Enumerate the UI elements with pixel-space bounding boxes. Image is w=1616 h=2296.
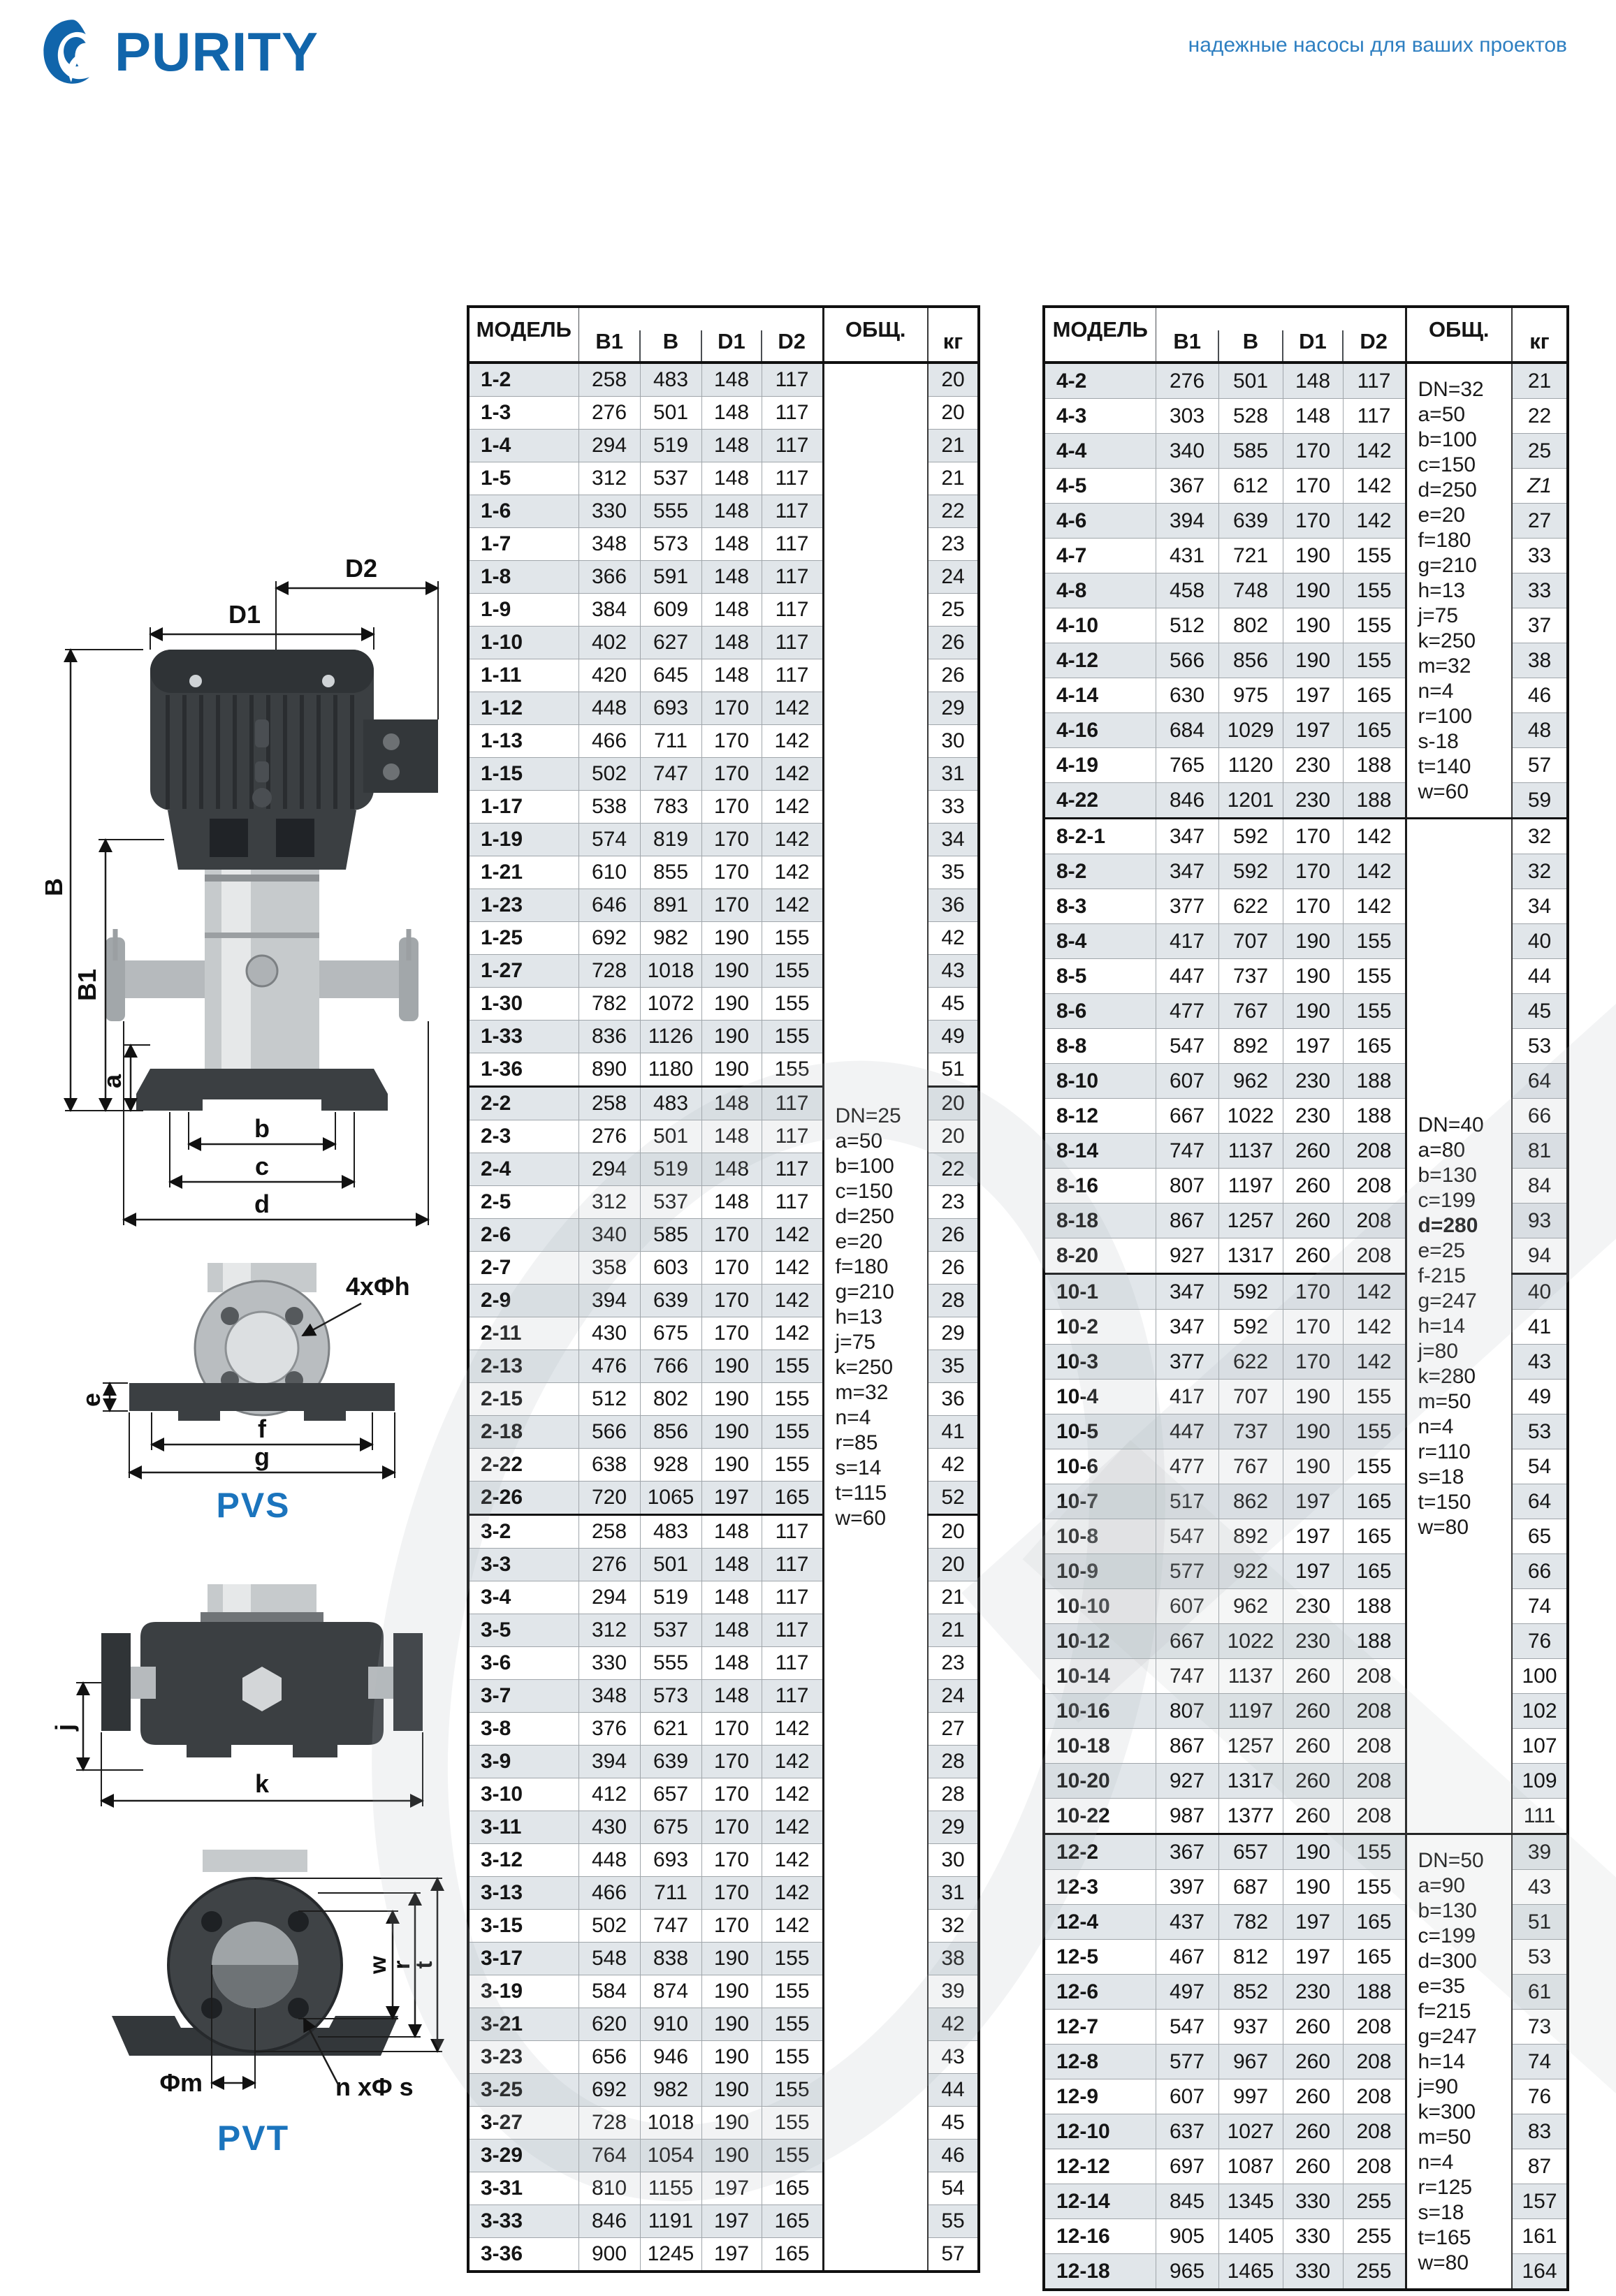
- note-line: f=180: [1418, 528, 1512, 553]
- model-cell: 1-12: [468, 692, 578, 725]
- b-cell: 711: [640, 725, 701, 758]
- d2-cell: 155: [762, 1383, 823, 1416]
- brand-tagline: надежные насосы для ваших проектов: [1188, 34, 1567, 57]
- b-cell: 621: [640, 1713, 701, 1746]
- col-header-b1: B1: [1156, 307, 1218, 363]
- b1-cell: 905: [1156, 2219, 1218, 2254]
- d1-cell: 170: [701, 1252, 762, 1285]
- b1-cell: 807: [1156, 1694, 1218, 1729]
- d1-cell: 190: [701, 1943, 762, 1975]
- note-line: s=14: [836, 1456, 928, 1481]
- b1-cell: 294: [578, 1581, 640, 1614]
- note-line: c=199: [1418, 1188, 1512, 1213]
- d1-cell: 148: [1283, 363, 1343, 399]
- b-cell: 501: [640, 1120, 701, 1153]
- dim-label-f: f: [258, 1414, 267, 1443]
- model-cell: 1-6: [468, 495, 578, 528]
- d2-cell: 155: [762, 1975, 823, 2008]
- kg-cell: 49: [928, 1021, 979, 1053]
- model-cell: 4-2: [1044, 363, 1156, 399]
- model-cell: 2-18: [468, 1416, 578, 1449]
- junction-box: [363, 719, 438, 793]
- b-cell: 1405: [1218, 2219, 1283, 2254]
- note-line: j=75: [836, 1330, 928, 1355]
- b1-cell: 312: [578, 1186, 640, 1219]
- b1-cell: 412: [578, 1778, 640, 1811]
- b-cell: 838: [640, 1943, 701, 1975]
- note-line: t=150: [1418, 1490, 1512, 1515]
- d1-cell: 197: [1283, 1940, 1343, 1975]
- b-cell: 874: [640, 1975, 701, 2008]
- d1-cell: 190: [1283, 1380, 1343, 1414]
- model-cell: 3-21: [468, 2008, 578, 2041]
- b-cell: 1027: [1218, 2114, 1283, 2149]
- b-cell: 783: [640, 791, 701, 824]
- model-cell: 2-3: [468, 1120, 578, 1153]
- d1-cell: 190: [701, 922, 762, 955]
- note-line: n=4: [836, 1405, 928, 1431]
- d2-cell: 142: [1343, 504, 1406, 539]
- d2-cell: 142: [1343, 1274, 1406, 1310]
- b1-cell: 607: [1156, 1064, 1218, 1099]
- pvt-side-view-diagram: j k: [45, 1584, 461, 1825]
- note-line: a=50: [836, 1129, 928, 1154]
- d1-cell: 170: [701, 758, 762, 791]
- d1-cell: 190: [1283, 959, 1343, 994]
- kg-cell: 26: [928, 627, 979, 659]
- d2-cell: 117: [762, 397, 823, 430]
- d1-cell: 260: [1283, 1659, 1343, 1694]
- header-row: МОДЕЛЬ B1 B D1 D2 ОБЩ. кг: [1044, 307, 1568, 363]
- d2-cell: 117: [762, 1120, 823, 1153]
- obsh-note-cell: DN=32a=50b=100c=150d=250e=20f=180g=210h=…: [1406, 363, 1512, 819]
- model-cell: 8-8: [1044, 1029, 1156, 1064]
- model-cell: 3-19: [468, 1975, 578, 2008]
- d1-cell: 148: [701, 1647, 762, 1680]
- b-cell: 585: [1218, 434, 1283, 469]
- d2-cell: 208: [1343, 1729, 1406, 1764]
- b1-cell: 366: [578, 561, 640, 594]
- kg-cell: 45: [1512, 994, 1568, 1029]
- model-cell: 2-7: [468, 1252, 578, 1285]
- d2-cell: 208: [1343, 1238, 1406, 1274]
- model-cell: 2-13: [468, 1350, 578, 1383]
- d2-cell: 155: [1343, 539, 1406, 573]
- kg-cell: 61: [1512, 1975, 1568, 2010]
- kg-cell: 43: [1512, 1870, 1568, 1905]
- kg-cell: 48: [1512, 713, 1568, 748]
- kg-cell: 102: [1512, 1694, 1568, 1729]
- d2-cell: 117: [1343, 363, 1406, 399]
- kg-cell: 107: [1512, 1729, 1568, 1764]
- b-cell: 1029: [1218, 713, 1283, 748]
- pvs-series-label: PVS: [45, 1485, 461, 1526]
- kg-cell: 66: [1512, 1554, 1568, 1589]
- model-cell: 12-14: [1044, 2184, 1156, 2219]
- d2-cell: 208: [1343, 2045, 1406, 2079]
- note-line: j=75: [1418, 604, 1512, 629]
- b-cell: 937: [1218, 2010, 1283, 2045]
- model-cell: 10-14: [1044, 1659, 1156, 1694]
- kg-cell: 43: [928, 955, 979, 988]
- b-cell: 928: [640, 1449, 701, 1482]
- kg-cell: Z1: [1512, 469, 1568, 504]
- b1-cell: 747: [1156, 1659, 1218, 1694]
- b1-cell: 377: [1156, 889, 1218, 924]
- kg-cell: 76: [1512, 1624, 1568, 1659]
- col-header-d2: D2: [1343, 307, 1406, 363]
- d2-cell: 155: [1343, 608, 1406, 643]
- b-cell: 1465: [1218, 2254, 1283, 2290]
- b-cell: 967: [1218, 2045, 1283, 2079]
- b-cell: 711: [640, 1877, 701, 1910]
- d1-cell: 197: [701, 1482, 762, 1515]
- kg-cell: 34: [928, 824, 979, 856]
- d1-cell: 148: [701, 1153, 762, 1186]
- d2-cell: 155: [1343, 1414, 1406, 1449]
- d2-cell: 117: [762, 1647, 823, 1680]
- b1-cell: 630: [1156, 678, 1218, 713]
- b1-cell: 437: [1156, 1905, 1218, 1940]
- note-line: b=100: [1418, 427, 1512, 453]
- d2-cell: 142: [762, 1877, 823, 1910]
- d2-cell: 142: [762, 1252, 823, 1285]
- model-cell: 3-6: [468, 1647, 578, 1680]
- model-cell: 1-25: [468, 922, 578, 955]
- model-cell: 4-4: [1044, 434, 1156, 469]
- d1-cell: 197: [1283, 1484, 1343, 1519]
- d2-cell: 188: [1343, 783, 1406, 819]
- note-line: h=14: [1418, 1314, 1512, 1339]
- d1-cell: 170: [701, 1746, 762, 1778]
- model-cell: 8-12: [1044, 1099, 1156, 1134]
- b-cell: 812: [1218, 1940, 1283, 1975]
- d1-cell: 330: [1283, 2184, 1343, 2219]
- d1-cell: 190: [701, 1350, 762, 1383]
- pvs-side-view-diagram: D2 D1 B B1 a b c d: [45, 552, 461, 1257]
- brand-logo: PURITY: [36, 15, 319, 88]
- d1-cell: 170: [701, 1713, 762, 1746]
- table-row: 12-2367657190155DN=50a=90b=130c=199d=300…: [1044, 1834, 1568, 1870]
- note-line: m=50: [1418, 1389, 1512, 1414]
- kg-cell: 34: [1512, 889, 1568, 924]
- d2-cell: 165: [1343, 1029, 1406, 1064]
- d1-cell: 197: [701, 2172, 762, 2205]
- kg-cell: 46: [928, 2140, 979, 2172]
- b1-cell: 347: [1156, 854, 1218, 889]
- b-cell: 891: [640, 889, 701, 922]
- b-cell: 1245: [640, 2238, 701, 2272]
- d2-cell: 188: [1343, 1975, 1406, 2010]
- model-cell: 10-22: [1044, 1799, 1156, 1834]
- note-line: h=13: [836, 1305, 928, 1330]
- d1-cell: 190: [1283, 924, 1343, 959]
- d2-cell: 142: [762, 1746, 823, 1778]
- note-line: e=35: [1418, 1974, 1512, 1999]
- note-line: j=80: [1418, 1339, 1512, 1364]
- b-cell: 892: [1218, 1519, 1283, 1554]
- d1-cell: 170: [701, 725, 762, 758]
- b1-cell: 258: [578, 363, 640, 397]
- note-line: h=14: [1418, 2049, 1512, 2075]
- note-line: a=90: [1418, 1873, 1512, 1899]
- model-cell: 4-12: [1044, 643, 1156, 678]
- model-cell: 12-18: [1044, 2254, 1156, 2290]
- b1-cell: 577: [1156, 2045, 1218, 2079]
- d1-cell: 170: [1283, 1310, 1343, 1345]
- d2-cell: 155: [1343, 959, 1406, 994]
- obsh-note-cell: DN=25a=50b=100c=150d=250e=20f=180g=210h=…: [823, 363, 928, 2272]
- kg-cell: 33: [928, 791, 979, 824]
- d1-cell: 197: [1283, 1905, 1343, 1940]
- col-header-obsh: ОБЩ.: [823, 307, 928, 363]
- d1-cell: 148: [701, 1186, 762, 1219]
- col-header-b: B: [640, 307, 701, 363]
- b1-cell: 764: [578, 2140, 640, 2172]
- kg-cell: 83: [1512, 2114, 1568, 2149]
- d2-cell: 155: [762, 1416, 823, 1449]
- dim-label-g: g: [254, 1442, 270, 1471]
- d1-cell: 148: [701, 1614, 762, 1647]
- model-cell: 8-3: [1044, 889, 1156, 924]
- d2-cell: 142: [1343, 469, 1406, 504]
- d1-cell: 260: [1283, 2114, 1343, 2149]
- b1-cell: 620: [578, 2008, 640, 2041]
- d2-cell: 155: [1343, 1834, 1406, 1870]
- kg-cell: 22: [928, 495, 979, 528]
- model-cell: 12-4: [1044, 1905, 1156, 1940]
- b-cell: 573: [640, 1680, 701, 1713]
- d1-cell: 197: [701, 2238, 762, 2272]
- note-line: c=199: [1418, 1924, 1512, 1949]
- b1-cell: 417: [1156, 924, 1218, 959]
- b1-cell: 466: [578, 725, 640, 758]
- b1-cell: 276: [578, 1120, 640, 1153]
- b1-cell: 330: [578, 495, 640, 528]
- purity-logo-icon: [36, 15, 109, 88]
- d2-cell: 208: [1343, 1204, 1406, 1238]
- kg-cell: 33: [1512, 539, 1568, 573]
- d1-cell: 260: [1283, 2149, 1343, 2184]
- d1-cell: 190: [1283, 1449, 1343, 1484]
- model-cell: 3-36: [468, 2238, 578, 2272]
- kg-cell: 20: [928, 1515, 979, 1549]
- col-header-model: МОДЕЛЬ: [468, 307, 578, 363]
- b1-cell: 497: [1156, 1975, 1218, 2010]
- note-line: e=20: [1418, 503, 1512, 528]
- model-cell: 4-16: [1044, 713, 1156, 748]
- b-cell: 1257: [1218, 1204, 1283, 1238]
- b1-cell: 312: [578, 462, 640, 495]
- b1-cell: 367: [1156, 1834, 1218, 1870]
- b-cell: 501: [640, 397, 701, 430]
- kg-cell: 41: [1512, 1310, 1568, 1345]
- d1-cell: 170: [1283, 504, 1343, 539]
- b1-cell: 402: [578, 627, 640, 659]
- note-line: c=150: [836, 1179, 928, 1204]
- b1-cell: 548: [578, 1943, 640, 1975]
- d2-cell: 155: [762, 2008, 823, 2041]
- model-cell: 1-11: [468, 659, 578, 692]
- b1-cell: 566: [1156, 643, 1218, 678]
- b1-cell: 294: [578, 1153, 640, 1186]
- model-cell: 1-7: [468, 528, 578, 561]
- b1-cell: 420: [578, 659, 640, 692]
- col-header-obsh: ОБЩ.: [1406, 307, 1512, 363]
- dimensions-table-right: МОДЕЛЬ B1 B D1 D2 ОБЩ. кг 4-227650114811…: [1042, 305, 1569, 2291]
- note-line: m=32: [836, 1380, 928, 1405]
- d2-cell: 142: [762, 1219, 823, 1252]
- d2-cell: 155: [762, 1449, 823, 1482]
- d1-cell: 260: [1283, 1764, 1343, 1799]
- d1-cell: 170: [701, 889, 762, 922]
- model-cell: 1-10: [468, 627, 578, 659]
- note-line: d=280: [1418, 1213, 1512, 1238]
- b-cell: 1126: [640, 1021, 701, 1053]
- note-line: w=60: [1418, 780, 1512, 805]
- d1-cell: 170: [1283, 854, 1343, 889]
- dim-label-phim: Φm: [159, 2068, 203, 2097]
- model-cell: 2-15: [468, 1383, 578, 1416]
- note-line: h=13: [1418, 578, 1512, 604]
- model-cell: 8-2-1: [1044, 819, 1156, 854]
- d2-cell: 117: [762, 363, 823, 397]
- note-line: g=247: [1418, 2024, 1512, 2049]
- note-line: r=110: [1418, 1440, 1512, 1465]
- note-line: DN=32: [1418, 377, 1512, 402]
- kg-cell: 21: [928, 430, 979, 462]
- model-cell: 10-9: [1044, 1554, 1156, 1589]
- kg-cell: 74: [1512, 1589, 1568, 1624]
- b1-cell: 747: [1156, 1134, 1218, 1169]
- d2-cell: 117: [762, 1680, 823, 1713]
- kg-cell: 25: [1512, 434, 1568, 469]
- b1-cell: 637: [1156, 2114, 1218, 2149]
- kg-cell: 20: [928, 363, 979, 397]
- model-cell: 8-10: [1044, 1064, 1156, 1099]
- dim-label-a: a: [98, 1074, 126, 1088]
- d2-cell: 142: [762, 725, 823, 758]
- b1-cell: 458: [1156, 573, 1218, 608]
- model-cell: 3-8: [468, 1713, 578, 1746]
- kg-cell: 57: [1512, 748, 1568, 783]
- kg-cell: 23: [928, 1186, 979, 1219]
- b1-cell: 512: [578, 1383, 640, 1416]
- b-cell: 519: [640, 1581, 701, 1614]
- d2-cell: 155: [1343, 1870, 1406, 1905]
- model-cell: 10-20: [1044, 1764, 1156, 1799]
- col-header-d2: D2: [762, 307, 823, 363]
- kg-cell: 26: [928, 659, 979, 692]
- d1-cell: 170: [701, 1811, 762, 1844]
- kg-cell: 46: [1512, 678, 1568, 713]
- table-row: 4-2276501148117DN=32a=50b=100c=150d=250e…: [1044, 363, 1568, 399]
- b-cell: 645: [640, 659, 701, 692]
- kg-cell: 33: [1512, 573, 1568, 608]
- d1-cell: 197: [1283, 1519, 1343, 1554]
- b-cell: 707: [1218, 1380, 1283, 1414]
- col-header-kg: кг: [928, 307, 979, 363]
- d1-cell: 170: [701, 1219, 762, 1252]
- kg-cell: 21: [928, 462, 979, 495]
- dim-label-nphis: n xΦ s: [335, 2072, 414, 2101]
- b1-cell: 303: [1156, 399, 1218, 434]
- b1-cell: 807: [1156, 1169, 1218, 1204]
- model-cell: 12-2: [1044, 1834, 1156, 1870]
- b1-cell: 430: [578, 1317, 640, 1350]
- d1-cell: 148: [701, 594, 762, 627]
- b-cell: 592: [1218, 1310, 1283, 1345]
- model-cell: 3-4: [468, 1581, 578, 1614]
- d2-cell: 208: [1343, 1694, 1406, 1729]
- b-cell: 1022: [1218, 1099, 1283, 1134]
- d2-cell: 117: [762, 659, 823, 692]
- dim-label-t: t: [411, 1961, 437, 1969]
- dim-label-d: d: [254, 1190, 270, 1218]
- d1-cell: 170: [701, 856, 762, 889]
- b1-cell: 692: [578, 922, 640, 955]
- d2-cell: 255: [1343, 2184, 1406, 2219]
- b1-cell: 347: [1156, 819, 1218, 854]
- dim-label-b-upper: B: [45, 878, 68, 896]
- d1-cell: 190: [1283, 573, 1343, 608]
- b-cell: 693: [640, 692, 701, 725]
- b-cell: 766: [640, 1350, 701, 1383]
- kg-cell: 74: [1512, 2045, 1568, 2079]
- d2-cell: 155: [1343, 924, 1406, 959]
- note-line: f-215: [1418, 1264, 1512, 1289]
- d1-cell: 190: [1283, 608, 1343, 643]
- d1-cell: 170: [701, 791, 762, 824]
- b-cell: 1191: [640, 2205, 701, 2238]
- model-cell: 1-33: [468, 1021, 578, 1053]
- d2-cell: 188: [1343, 1064, 1406, 1099]
- d1-cell: 230: [1283, 748, 1343, 783]
- kg-cell: 44: [928, 2074, 979, 2107]
- kg-cell: 40: [1512, 1274, 1568, 1310]
- d1-cell: 170: [701, 1877, 762, 1910]
- d1-cell: 230: [1283, 1975, 1343, 2010]
- model-cell: 2-22: [468, 1449, 578, 1482]
- d1-cell: 190: [1283, 539, 1343, 573]
- d1-cell: 148: [701, 659, 762, 692]
- model-cell: 2-2: [468, 1087, 578, 1120]
- col-header-model: МОДЕЛЬ: [1044, 307, 1156, 363]
- d2-cell: 165: [1343, 1940, 1406, 1975]
- b-cell: 639: [640, 1746, 701, 1778]
- kg-cell: 73: [1512, 2010, 1568, 2045]
- d2-cell: 188: [1343, 1589, 1406, 1624]
- model-cell: 3-12: [468, 1844, 578, 1877]
- col-header-b: B: [1218, 307, 1283, 363]
- d2-cell: 117: [762, 1549, 823, 1581]
- d1-cell: 170: [701, 1844, 762, 1877]
- d2-cell: 142: [1343, 889, 1406, 924]
- model-cell: 3-7: [468, 1680, 578, 1713]
- d2-cell: 117: [762, 495, 823, 528]
- b-cell: 962: [1218, 1589, 1283, 1624]
- model-cell: 4-3: [1044, 399, 1156, 434]
- kg-cell: 24: [928, 561, 979, 594]
- b-cell: 767: [1218, 994, 1283, 1029]
- d1-cell: 148: [1283, 399, 1343, 434]
- note-line: s=18: [1418, 2200, 1512, 2225]
- b-cell: 483: [640, 1087, 701, 1120]
- model-cell: 4-7: [1044, 539, 1156, 573]
- d1-cell: 170: [701, 824, 762, 856]
- kg-cell: 54: [928, 2172, 979, 2205]
- model-cell: 12-10: [1044, 2114, 1156, 2149]
